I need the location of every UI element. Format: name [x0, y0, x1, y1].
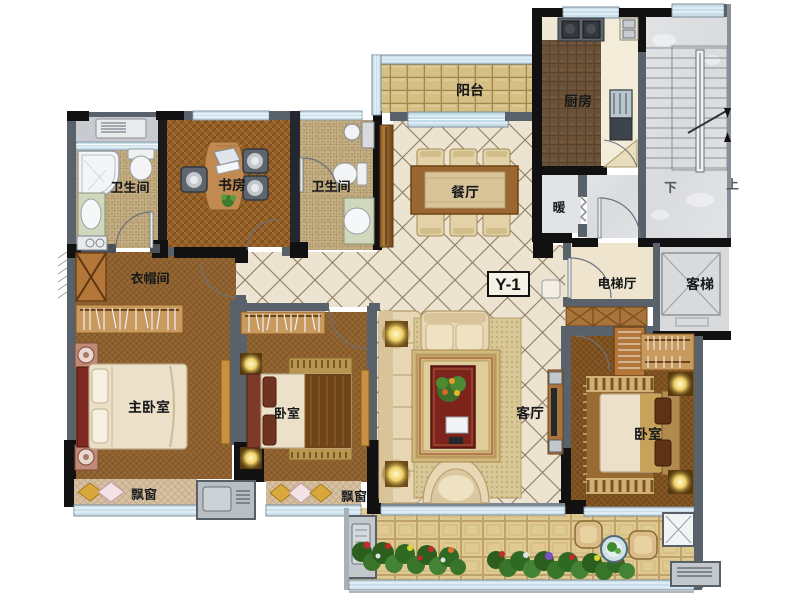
svg-text:Y-1: Y-1 — [495, 275, 521, 294]
